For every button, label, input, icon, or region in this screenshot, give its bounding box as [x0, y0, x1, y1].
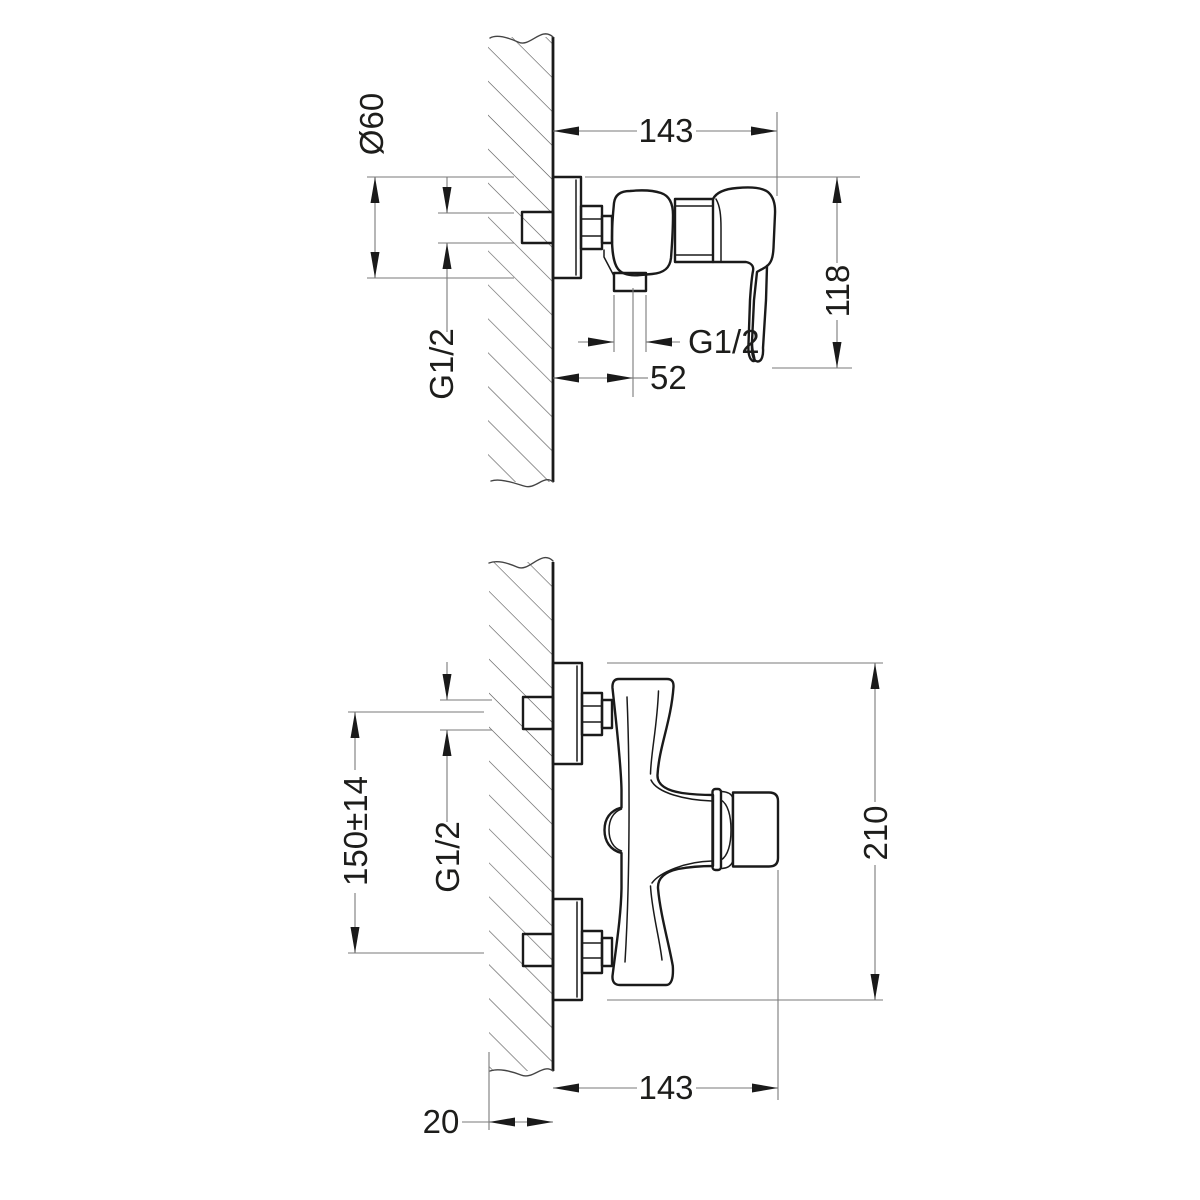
dimensions-front-view: 150±14 G1/2 210	[337, 662, 894, 1140]
drawing-sheet: 143 Ø60 G1/2	[0, 0, 1200, 1200]
connector-tube-lower	[602, 938, 612, 966]
dim-hole-spacing-label: 150±14	[337, 776, 374, 886]
body-inner-contour-left	[625, 697, 629, 962]
technical-drawing: 143 Ø60 G1/2	[0, 0, 1200, 1200]
dimension-width-side: 143	[553, 112, 777, 196]
handle-stem-barrel	[721, 800, 731, 860]
dim-outlet-offset-label: 52	[650, 359, 687, 396]
dimension-height-front: 210	[607, 663, 894, 1000]
hex-nut-upper	[582, 693, 602, 735]
dim-height-front-label: 210	[857, 805, 894, 860]
hex-nut-side	[581, 206, 602, 249]
dim-width-front-label: 143	[638, 1069, 693, 1106]
cartridge-body-side	[612, 190, 673, 275]
knob-inner-arc-bottom	[722, 862, 733, 869]
dim-height-side-label: 118	[819, 265, 856, 318]
handle-collar-line	[716, 199, 721, 262]
body-inner-contour-right-lower	[651, 886, 663, 960]
lever-handle-front	[713, 789, 779, 870]
dim-outlet-thread-label: G1/2	[688, 323, 760, 360]
connector-tube-side	[602, 216, 612, 243]
dim-width-side-label: 143	[638, 112, 693, 149]
dim-wall-depth-label: 20	[423, 1103, 460, 1140]
handle-knob	[733, 793, 778, 867]
knob-inner-arc-top	[722, 792, 733, 798]
hex-nut-lower	[582, 931, 602, 973]
mixer-front-view	[523, 663, 778, 1000]
dim-inlet-thread-front-label: G1/2	[429, 821, 466, 893]
front-view: 150±14 G1/2 210	[337, 558, 894, 1140]
wall-section-front-view	[489, 558, 553, 1076]
flange-side	[553, 177, 581, 278]
dimension-outlet-thread: G1/2	[578, 295, 760, 360]
dim-inlet-thread-side-label: G1/2	[423, 328, 460, 400]
body-inner-contour-right-upper	[651, 691, 659, 774]
body-bump-inner-arc	[609, 809, 622, 851]
dimensions-side-view: 143 Ø60 G1/2	[353, 93, 860, 400]
connector-tube-upper	[602, 700, 612, 728]
wall-section-side-view	[488, 34, 553, 487]
valve-adapter-side	[675, 199, 713, 262]
dimension-width-front: 143	[553, 870, 778, 1106]
wall-hatch	[488, 37, 553, 482]
side-view: 143 Ø60 G1/2	[353, 34, 860, 487]
dim-flange-diameter-label: Ø60	[353, 93, 390, 155]
wall-hatch	[489, 562, 553, 1071]
dimension-inlet-thread-front: G1/2	[429, 662, 492, 893]
